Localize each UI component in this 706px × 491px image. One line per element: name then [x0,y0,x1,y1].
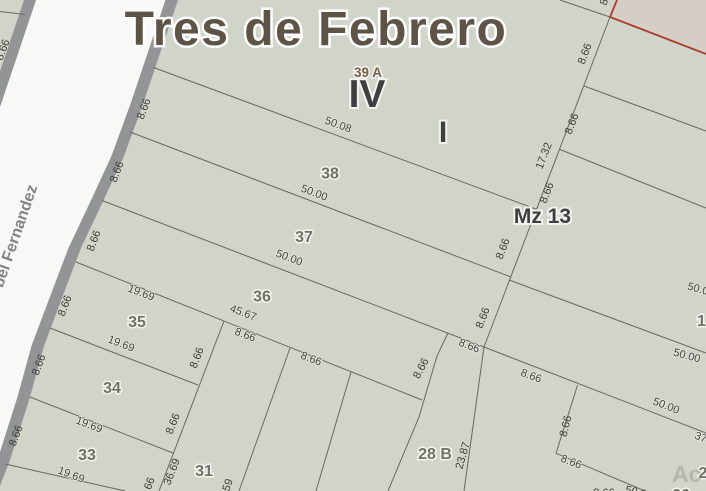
svg-text:34: 34 [103,380,121,397]
svg-text:I: I [439,116,447,149]
svg-text:Tres de Febrero: Tres de Febrero [125,3,508,56]
svg-text:28 B: 28 B [418,446,452,463]
svg-text:38: 38 [321,166,339,183]
svg-text:Mz 13: Mz 13 [514,205,571,228]
svg-text:31: 31 [195,463,213,480]
svg-text:8.66: 8.66 [593,487,614,491]
svg-text:36: 36 [253,289,271,306]
svg-text:37: 37 [295,229,313,246]
svg-text:33: 33 [78,447,96,464]
svg-text:1: 1 [697,313,706,330]
svg-text:35: 35 [128,314,146,331]
svg-text:Ac: Ac [672,461,702,487]
svg-text:26: 26 [672,487,690,491]
svg-text:IV: IV [349,73,386,116]
